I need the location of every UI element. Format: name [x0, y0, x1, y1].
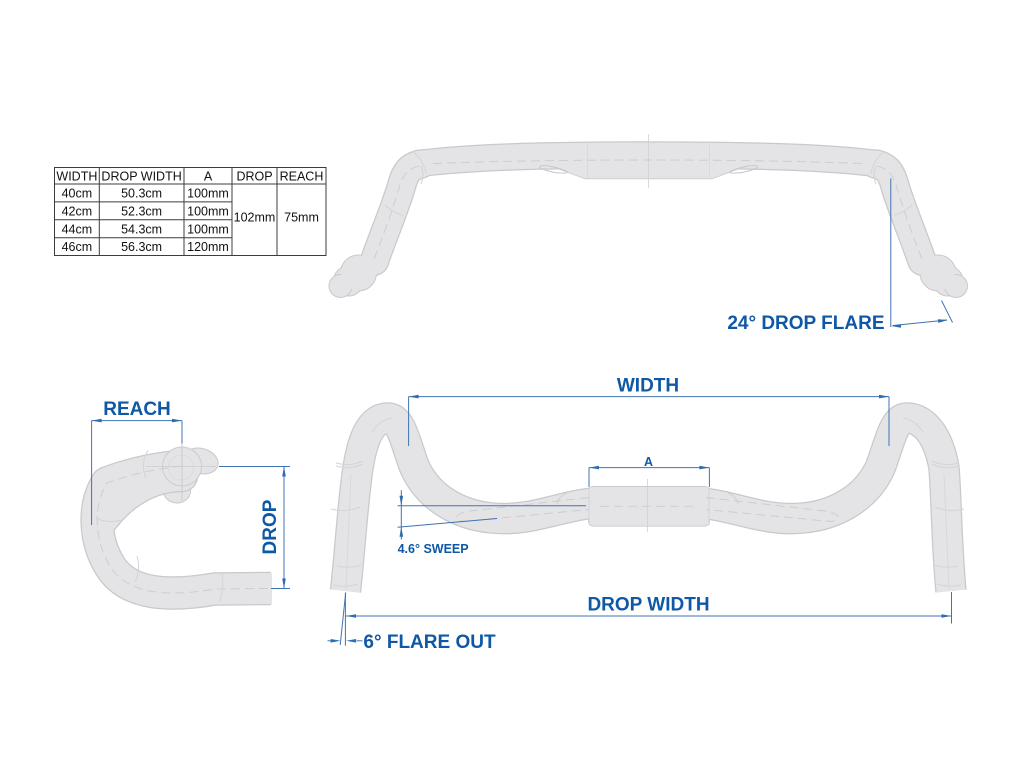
- svg-text:DROP: DROP: [260, 499, 281, 554]
- svg-text:REACH: REACH: [103, 399, 171, 420]
- svg-text:54.3cm: 54.3cm: [121, 222, 162, 236]
- svg-text:WIDTH: WIDTH: [56, 170, 97, 184]
- svg-text:100mm: 100mm: [187, 222, 229, 236]
- svg-text:120mm: 120mm: [187, 240, 229, 254]
- svg-text:44cm: 44cm: [62, 222, 93, 236]
- svg-text:A: A: [204, 170, 213, 184]
- svg-text:4.6° SWEEP: 4.6° SWEEP: [398, 542, 469, 556]
- svg-text:A: A: [644, 455, 653, 469]
- svg-text:56.3cm: 56.3cm: [121, 240, 162, 254]
- svg-text:52.3cm: 52.3cm: [121, 204, 162, 218]
- svg-text:46cm: 46cm: [62, 240, 93, 254]
- svg-text:REACH: REACH: [280, 170, 324, 184]
- svg-text:DROP WIDTH: DROP WIDTH: [587, 595, 709, 616]
- svg-text:DROP: DROP: [236, 170, 272, 184]
- svg-text:6° FLARE OUT: 6° FLARE OUT: [363, 632, 496, 653]
- svg-text:102mm: 102mm: [234, 211, 276, 225]
- svg-text:100mm: 100mm: [187, 204, 229, 218]
- svg-text:42cm: 42cm: [62, 204, 93, 218]
- svg-text:75mm: 75mm: [284, 211, 319, 225]
- svg-text:100mm: 100mm: [187, 187, 229, 201]
- svg-text:40cm: 40cm: [62, 187, 93, 201]
- svg-text:50.3cm: 50.3cm: [121, 187, 162, 201]
- svg-text:WIDTH: WIDTH: [617, 376, 679, 397]
- svg-text:DROP WIDTH: DROP WIDTH: [101, 170, 181, 184]
- svg-text:24° DROP FLARE: 24° DROP FLARE: [727, 313, 884, 334]
